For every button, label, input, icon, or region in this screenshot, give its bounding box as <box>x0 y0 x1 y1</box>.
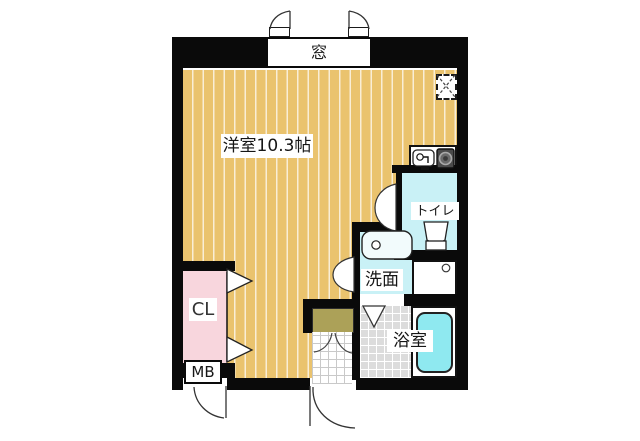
pipe-space-x-icon <box>437 75 455 97</box>
sink-icon <box>413 150 434 170</box>
closet-label: CL <box>189 298 217 321</box>
bathroom-label: 浴室 <box>387 330 433 352</box>
closet-door-fold-icon <box>227 269 252 362</box>
window-swing-left-icon <box>270 11 290 29</box>
washroom-label: 洗面 <box>361 269 403 291</box>
main-room-label: 洋室10.3帖 <box>221 134 313 158</box>
toilet-door-swing-icon <box>375 184 396 231</box>
toilet-icon <box>424 222 448 250</box>
floor-plan: 窓 MB <box>0 0 640 441</box>
washing-machine-pan-icon <box>442 264 450 272</box>
entrance-door-swing-icon <box>310 386 355 428</box>
entry-cabinet-swing-icon <box>314 333 352 353</box>
symbols-overlay <box>0 0 640 441</box>
bathroom-door-fold-icon <box>363 306 385 327</box>
washroom-door-swing-icon <box>333 257 354 292</box>
toilet-label: トイレ <box>411 202 459 220</box>
meter-box-door-swing-icon <box>194 386 226 418</box>
window-swing-right-icon <box>349 11 369 29</box>
washbasin-icon <box>362 231 412 259</box>
stove-icon <box>437 149 454 168</box>
